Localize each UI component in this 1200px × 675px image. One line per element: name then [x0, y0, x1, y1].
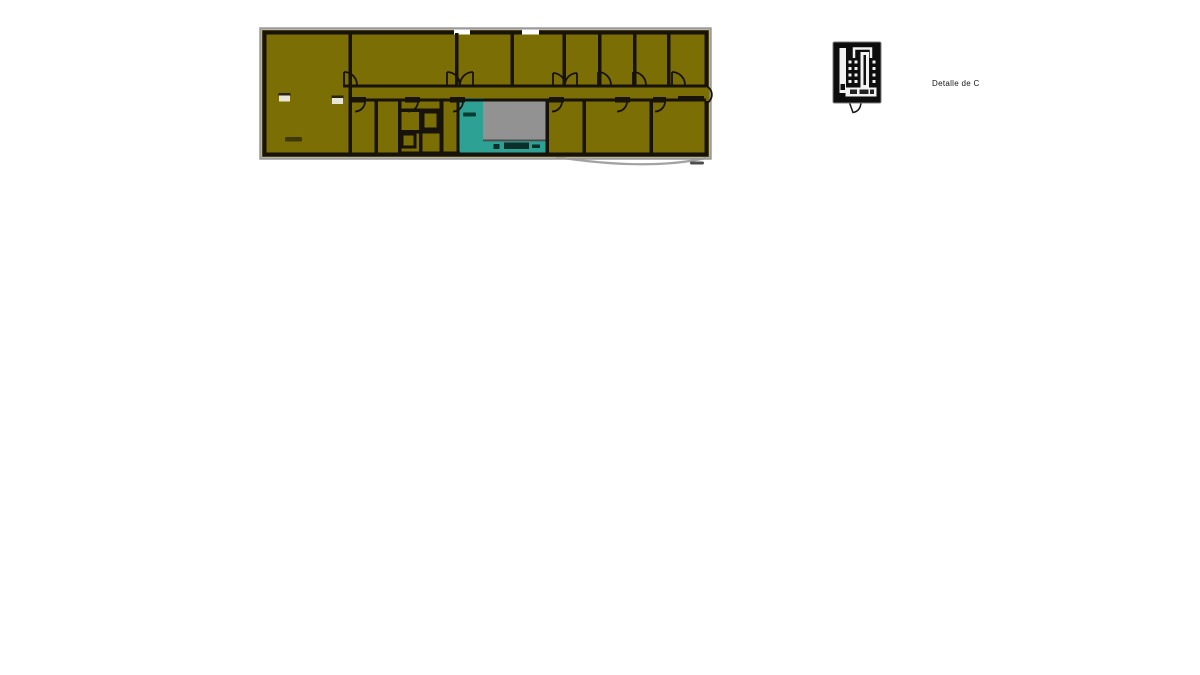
corridor-wall-bottom — [350, 99, 706, 102]
corner-mark — [690, 162, 704, 165]
drawing-canvas: Detalle de C — [0, 0, 1200, 675]
detail-label: Detalle de C — [932, 79, 980, 88]
wall-segment — [583, 102, 587, 154]
stair-mark — [532, 145, 540, 149]
wall-segment — [349, 33, 353, 154]
wall-segment — [667, 33, 671, 85]
wall-segment — [546, 102, 550, 154]
stair-mark — [504, 143, 529, 150]
window-opening — [522, 30, 539, 35]
floor-plan-drawing — [0, 0, 1200, 675]
hall-room — [483, 101, 546, 141]
door-lintel — [678, 96, 704, 101]
room-label-smudge — [463, 113, 476, 117]
detail-bottom-tick — [860, 90, 869, 95]
detail-bottom-tick — [850, 90, 857, 95]
wall-segment — [650, 102, 654, 154]
fixture-mark — [279, 96, 290, 102]
building-plan — [261, 29, 712, 165]
door-lintel — [653, 97, 666, 103]
wall-segment — [398, 152, 460, 156]
room-label-smudge — [285, 137, 302, 142]
detail-left-bar-notch — [841, 84, 846, 90]
door-lintel — [351, 97, 366, 103]
fixture-mark — [332, 98, 343, 104]
wall-segment — [375, 102, 379, 154]
corridor-wall-top — [343, 85, 706, 88]
room-separator-line — [483, 140, 546, 142]
detail-bottom-tick — [870, 90, 874, 95]
detail-channel-line — [864, 55, 867, 85]
wall-segment — [511, 33, 515, 85]
detail-drawing — [833, 42, 881, 113]
stair-mark — [494, 144, 500, 149]
